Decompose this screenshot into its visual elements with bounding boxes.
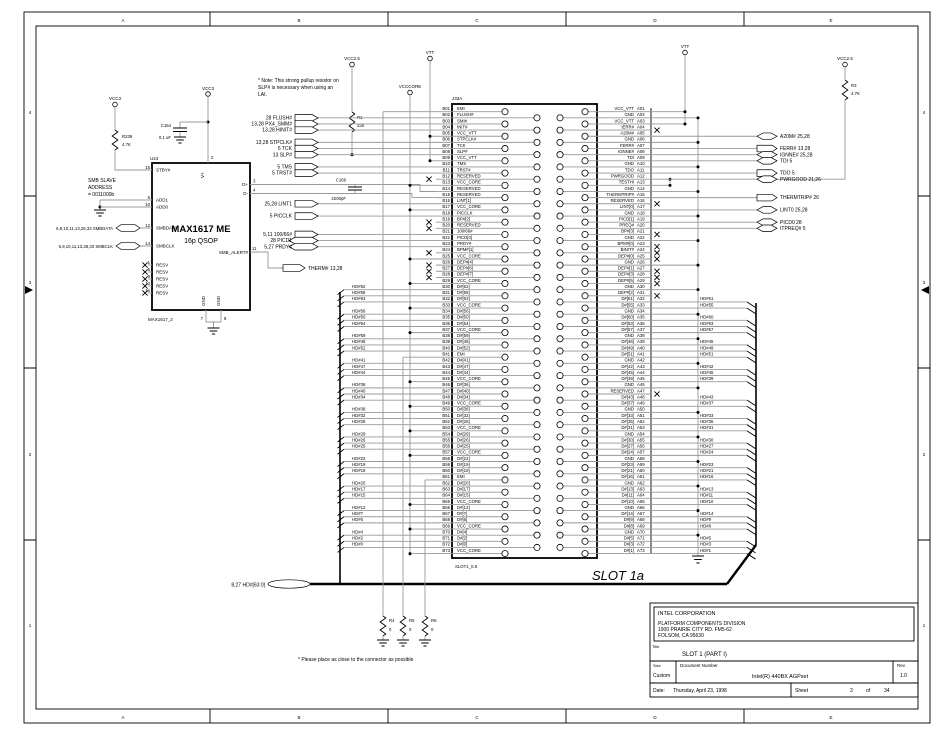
junction-dot	[409, 331, 412, 334]
max1617-subtitle: 16p QSOP	[184, 238, 218, 245]
bus-tap	[747, 376, 756, 382]
pin-name: D#[29]	[457, 431, 470, 436]
pin-name: D#[56]	[457, 309, 470, 314]
pin-name: D#[6]	[457, 517, 467, 522]
signal-flag	[295, 170, 318, 177]
pin-number: B49	[442, 401, 450, 406]
hd-net-label: HD#17	[352, 486, 366, 491]
pin-number: B12	[442, 174, 450, 179]
pin-name: RESERVED	[610, 198, 634, 203]
hd-net-label: HD#41	[352, 358, 366, 363]
pin-contact	[502, 501, 508, 507]
pin-contact	[557, 458, 563, 464]
pin-contact	[534, 520, 540, 526]
junction-dot	[697, 386, 700, 389]
pin-number: A62	[637, 480, 645, 485]
pin-number: B56	[442, 444, 450, 449]
pin-name: GND	[216, 295, 221, 306]
hd-net-label: HD#20	[352, 480, 366, 485]
pin-name: D#[37]	[621, 401, 634, 406]
pin-number: A02	[637, 112, 645, 117]
pin-name: EMI	[457, 474, 465, 479]
power-symbol	[683, 50, 688, 55]
pin-name: D#[49]	[621, 345, 634, 350]
pin-contact	[502, 366, 508, 372]
pin-number: A06	[637, 137, 645, 142]
junction-dot	[684, 110, 687, 113]
pin-name: D#[59]	[457, 333, 470, 338]
pin-contact	[557, 372, 563, 378]
bus-tap	[747, 455, 756, 461]
junction-dot	[409, 282, 412, 285]
signal-flag	[116, 225, 140, 232]
smbdata-label: 6,9,10,11,13,28,33 SMBDATA	[56, 226, 113, 231]
sheet-total: 34	[884, 688, 890, 694]
pin-contact	[502, 440, 508, 446]
date-value: Thursday, April 23, 1998	[673, 688, 727, 694]
rev-label: Rev	[897, 663, 906, 668]
pin-contact	[557, 262, 563, 268]
pin-contact	[534, 532, 540, 538]
pin-number: B26	[442, 259, 450, 264]
pin-name: RESERVED	[457, 186, 481, 191]
pin-contact	[534, 201, 540, 207]
junction-dot	[697, 264, 700, 267]
pin-contact	[534, 458, 540, 464]
pin-contact	[534, 287, 540, 293]
pin-contact	[557, 520, 563, 526]
pin-name: GND	[624, 407, 634, 412]
signal-label: 5 PICCLK	[270, 214, 293, 220]
zone-number: 1	[29, 623, 32, 628]
junction-dot	[409, 405, 412, 408]
pin-contact	[582, 342, 588, 348]
junction-dot	[697, 141, 700, 144]
pin-name: D#[46]	[621, 339, 634, 344]
left-border-marker	[25, 286, 33, 294]
pin-contact	[557, 544, 563, 550]
signal-flag	[757, 219, 777, 226]
signal-label: 13 SLP#	[273, 152, 292, 158]
pin-contact	[557, 115, 563, 121]
vtt-right-label: VTT	[681, 44, 690, 49]
zone-number: 3	[923, 280, 926, 285]
pin-name: STBY#	[156, 168, 171, 173]
pin-name: GND	[624, 382, 634, 387]
pin-name: GND	[624, 137, 634, 142]
pin-contact	[502, 145, 508, 151]
pin-number: B29	[442, 278, 450, 283]
pin-name: D#[14]	[621, 511, 634, 516]
zone-letter: A	[121, 18, 124, 23]
hd-net-label: HD#27	[700, 444, 714, 449]
pin-name: D#[26]	[457, 437, 470, 442]
bus-tap	[747, 443, 756, 449]
pin-contact	[534, 544, 540, 550]
pin-number: B17	[442, 204, 450, 209]
no-connect-x	[426, 269, 431, 274]
bus-tap	[747, 480, 756, 486]
pin-number: B22	[442, 235, 450, 240]
pin-number: A05	[637, 131, 645, 136]
note-top-line: LAI.	[258, 92, 267, 98]
pin-contact	[582, 501, 588, 507]
no-connect-x	[654, 128, 659, 133]
pin-name: TCK	[457, 143, 466, 148]
pin-contact	[557, 299, 563, 305]
smb-address-line: ADDRESS	[88, 185, 113, 191]
hd-net-label: HD#33	[700, 413, 714, 418]
pin-number: A63	[637, 486, 645, 491]
pin-contact	[582, 330, 588, 336]
pin-number: B67	[442, 511, 450, 516]
signal-label: 5 TCK	[278, 146, 293, 152]
pin-contact	[502, 109, 508, 115]
pin-number: B46	[442, 382, 450, 387]
pin-contact	[502, 379, 508, 385]
signal-label: 5,27 PRDY#	[264, 244, 292, 250]
pin-contact	[582, 170, 588, 176]
pin-contact	[557, 127, 563, 133]
c164-ref: C164	[161, 123, 172, 128]
no-connect-x	[654, 201, 659, 206]
pin-contact	[534, 446, 540, 452]
signal-label: ITPREQ# 5	[780, 226, 806, 232]
zone-ticks	[24, 12, 930, 723]
pin-contact	[557, 287, 563, 293]
pin-number: A30	[637, 284, 645, 289]
signal-flag	[289, 237, 318, 244]
pin-name: RESV	[156, 277, 168, 282]
bus-tap	[747, 302, 756, 308]
hd-net-label: HD#7	[352, 511, 364, 516]
pin-number: A58	[637, 456, 645, 461]
pin-contact	[534, 471, 540, 477]
bus-tap	[747, 345, 756, 351]
inner-border	[36, 26, 918, 709]
no-connect-x	[654, 269, 659, 274]
pin-name: D#[63]	[457, 296, 470, 301]
pin-name: RESERVED	[457, 223, 481, 228]
pin-contact	[502, 317, 508, 323]
zone-number: 4	[923, 110, 926, 115]
hd-net-label: HD#18	[352, 468, 366, 473]
max1617-refdes: U24	[150, 156, 159, 161]
pin-name: EMI	[457, 106, 465, 111]
pin-contact	[582, 280, 588, 286]
pin-contact	[502, 428, 508, 434]
pin-contact	[502, 330, 508, 336]
hd-net-label: HD#21	[700, 468, 714, 473]
pin-contact	[534, 213, 540, 219]
pin-number: B01	[442, 106, 450, 111]
pin-contact	[557, 176, 563, 182]
pin-number: A50	[637, 407, 645, 412]
pin-number: A45	[637, 376, 645, 381]
pin-number: B42	[442, 358, 450, 363]
signal-label: 5 TMS	[277, 165, 292, 171]
pin-contact	[534, 225, 540, 231]
pin-name: LINT[1]	[457, 198, 471, 203]
pin-number: A15	[637, 192, 645, 197]
hd-net-label: HD#37	[700, 401, 714, 406]
signal-label: A20M# 25,28	[780, 134, 810, 140]
signal-flag	[289, 243, 318, 250]
power-symbol	[113, 102, 118, 107]
junction-dot	[409, 528, 412, 531]
pin-number: A72	[637, 542, 645, 547]
pin-contact	[502, 207, 508, 213]
pin-contact	[534, 360, 540, 366]
pin-name: D#[4]	[457, 529, 467, 534]
pin-contact	[582, 219, 588, 225]
pin-name: D#[41]	[457, 358, 470, 363]
pin-number: A65	[637, 499, 645, 504]
r3-ref: R3	[851, 83, 857, 88]
pin-name: TDI	[627, 155, 634, 160]
pin-number: A34	[637, 309, 645, 314]
pin-name: VCC_CORE	[457, 302, 481, 307]
signal-label: 13,28 HINIT#	[262, 128, 292, 134]
pin-number: B31	[442, 290, 450, 295]
pin-number: A60	[637, 468, 645, 473]
pin-number: 6	[148, 195, 151, 200]
zone-letter: C	[475, 715, 479, 720]
power-symbol	[428, 56, 433, 61]
pin-contact	[582, 317, 588, 323]
pin-contact	[534, 188, 540, 194]
pin-name: V+	[200, 172, 205, 178]
vcc25-r1-label: VCC2.5	[344, 56, 360, 61]
pin-contact	[502, 391, 508, 397]
pin-name: D#[39]	[621, 376, 634, 381]
pin-number: A18	[637, 210, 645, 215]
pin-contact	[582, 538, 588, 544]
pin-contact	[557, 483, 563, 489]
pin-number: B16	[442, 198, 450, 203]
pin-number: B52	[442, 419, 450, 424]
pin-name: BPM#[1]	[457, 247, 473, 252]
r239-resistor	[112, 130, 118, 150]
pin-number: A48	[637, 394, 645, 399]
hd-net-label: HD#60	[700, 315, 714, 320]
pin-number: B41	[442, 351, 450, 356]
c166-capacitor	[348, 187, 362, 190]
r6-resistor	[422, 616, 428, 636]
pin-name: D#[58]	[457, 290, 470, 295]
pin-name: GND	[624, 259, 634, 264]
signal-label: PICD0 28	[780, 220, 802, 226]
junction-dot	[697, 288, 700, 291]
pin-number: B27	[442, 266, 450, 271]
pin-name: D#[48]	[457, 339, 470, 344]
pin-number: B24	[442, 247, 450, 252]
pin-number: A57	[637, 450, 645, 455]
signal-label: 28 PICD1	[270, 238, 292, 244]
pin-number: A12	[637, 174, 645, 179]
pin-contact	[534, 152, 540, 158]
pin-number: A31	[637, 290, 645, 295]
pin-name: RESERVED	[457, 174, 481, 179]
hd-net-label: HD#24	[700, 450, 714, 455]
c164-wires	[180, 122, 208, 137]
pin-number: B32	[442, 296, 450, 301]
pin-number: B14	[442, 186, 450, 191]
pin-number: B08	[442, 149, 450, 154]
pin-number: B61	[442, 474, 450, 479]
pin-number: B65	[442, 499, 450, 504]
pin-contact	[534, 176, 540, 182]
hd-net-label: HD#5	[700, 536, 712, 541]
signal-label: 5,11 100/66#	[263, 232, 292, 238]
pin-name: GND	[624, 505, 634, 510]
pin-name: RESV	[156, 263, 168, 268]
pin-number: 12	[145, 223, 150, 228]
hd-net-label: HD#62	[352, 284, 366, 289]
junction-dot	[409, 380, 412, 383]
pin-contact	[534, 508, 540, 514]
zone-letter: B	[297, 715, 300, 720]
pin-name: D#[5]	[624, 536, 634, 541]
bus-tap	[747, 517, 756, 523]
connector-footprint: SLOT1_0.8	[455, 564, 478, 569]
pin-contact	[557, 164, 563, 170]
hd-net-label: HD#35	[700, 419, 714, 424]
signal-flag	[295, 127, 318, 134]
pin-number: A73	[637, 548, 645, 553]
pin-name: D#[36]	[457, 382, 470, 387]
pin-number: B05	[442, 131, 450, 136]
pin-number: B72	[442, 542, 450, 547]
pin-contact	[557, 274, 563, 280]
junction-dot	[697, 239, 700, 242]
pin-contact	[582, 403, 588, 409]
bus-tap	[747, 498, 756, 504]
pin-number: B63	[442, 486, 450, 491]
pin-contact	[557, 508, 563, 514]
r5-ref: R5	[409, 618, 415, 623]
pin-number: B55	[442, 437, 450, 442]
pin-number: B28	[442, 272, 450, 277]
bus-tap	[747, 351, 756, 357]
pin-name: GND	[624, 358, 634, 363]
power-symbol	[408, 90, 413, 95]
pin-number: A32	[637, 296, 645, 301]
pin-number: A47	[637, 388, 645, 393]
pin-number: A38	[637, 333, 645, 338]
emi-wires	[383, 112, 425, 616]
pin-number: A14	[637, 186, 645, 191]
hd-net-label: HD#55	[700, 302, 714, 307]
r4-resistor	[380, 616, 386, 636]
max1617-title: MAX1617 ME	[171, 224, 230, 235]
signal-label: IGNNE# 25,28	[780, 152, 813, 158]
pin-contact	[502, 354, 508, 360]
pin-contact	[582, 526, 588, 532]
pin-number: B09	[442, 155, 450, 160]
power-symbol	[843, 62, 848, 67]
signal-label: 28 FLUSH#	[266, 115, 292, 121]
pin-number: A07	[637, 143, 645, 148]
pin-contact	[534, 164, 540, 170]
pin-name: D#[31]	[621, 425, 634, 430]
pin-contact	[582, 550, 588, 556]
hd-net-label: HD#38	[352, 407, 366, 412]
pin-number: A11	[637, 167, 645, 172]
hd-net-label: HD#59	[352, 333, 366, 338]
pin-number: A37	[637, 327, 645, 332]
pin-number: B69	[442, 523, 450, 528]
pin-number: A22	[637, 235, 645, 240]
pin-name: VCC_CORE	[457, 425, 481, 430]
signal-flag	[757, 170, 777, 177]
pin-contact	[502, 256, 508, 262]
hd-net-label: HD#15	[352, 493, 366, 498]
r5-resistor	[400, 616, 406, 636]
bus-tap	[747, 492, 756, 498]
pin-contact	[557, 336, 563, 342]
pin-number: 7	[201, 316, 204, 321]
pin-contact	[582, 305, 588, 311]
ground-symbol	[94, 210, 106, 216]
pin-number: B37	[442, 327, 450, 332]
pin-contact	[502, 170, 508, 176]
pin-name: D#[45]	[621, 370, 634, 375]
pin-name: D#[50]	[457, 315, 470, 320]
power-symbol	[350, 62, 355, 67]
signal-flag	[116, 243, 140, 250]
pin-name: SMB_ALERT#	[219, 250, 249, 255]
hd-net-label: HD#23	[700, 462, 714, 467]
pin-number: B71	[442, 536, 450, 541]
junction-dot	[409, 552, 412, 555]
pin-number: A23	[637, 241, 645, 246]
pin-contact	[557, 446, 563, 452]
pin-name: VCC_CORE	[457, 180, 481, 185]
pin-contact	[582, 440, 588, 446]
pin-contact	[502, 415, 508, 421]
bus-tap	[747, 468, 756, 474]
pin-name: INIT#	[457, 124, 468, 129]
pin-number: B57	[442, 450, 450, 455]
pin-contact	[557, 201, 563, 207]
signal-flag	[757, 133, 777, 140]
pin-name: D#[3]	[624, 542, 634, 547]
pin-number: A59	[637, 462, 645, 467]
rev-value: 1.0	[900, 673, 907, 679]
pin-name: D#[8]	[624, 523, 634, 528]
pin-number: B45	[442, 376, 450, 381]
pin-number: 5	[148, 267, 151, 272]
pin-contact	[502, 219, 508, 225]
pin-name: D#[19]	[457, 462, 470, 467]
vcc3-left-label: VCC3	[109, 96, 122, 101]
no-connect-x	[426, 177, 431, 182]
hd-net-label: HD#8	[700, 523, 712, 528]
hd-net-label: HD#9	[700, 517, 712, 522]
pin-contact	[582, 452, 588, 458]
signal-flag	[757, 194, 777, 201]
pin-contact	[582, 195, 588, 201]
pin-number: B68	[442, 517, 450, 522]
pin-name: D#[25]	[457, 444, 470, 449]
pin-number: A16	[637, 198, 645, 203]
hd-net-label: HD#47	[352, 364, 366, 369]
bus-tap	[747, 474, 756, 480]
junction-dot	[409, 307, 412, 310]
pin-number: A67	[637, 511, 645, 516]
bus-tap	[747, 382, 756, 388]
